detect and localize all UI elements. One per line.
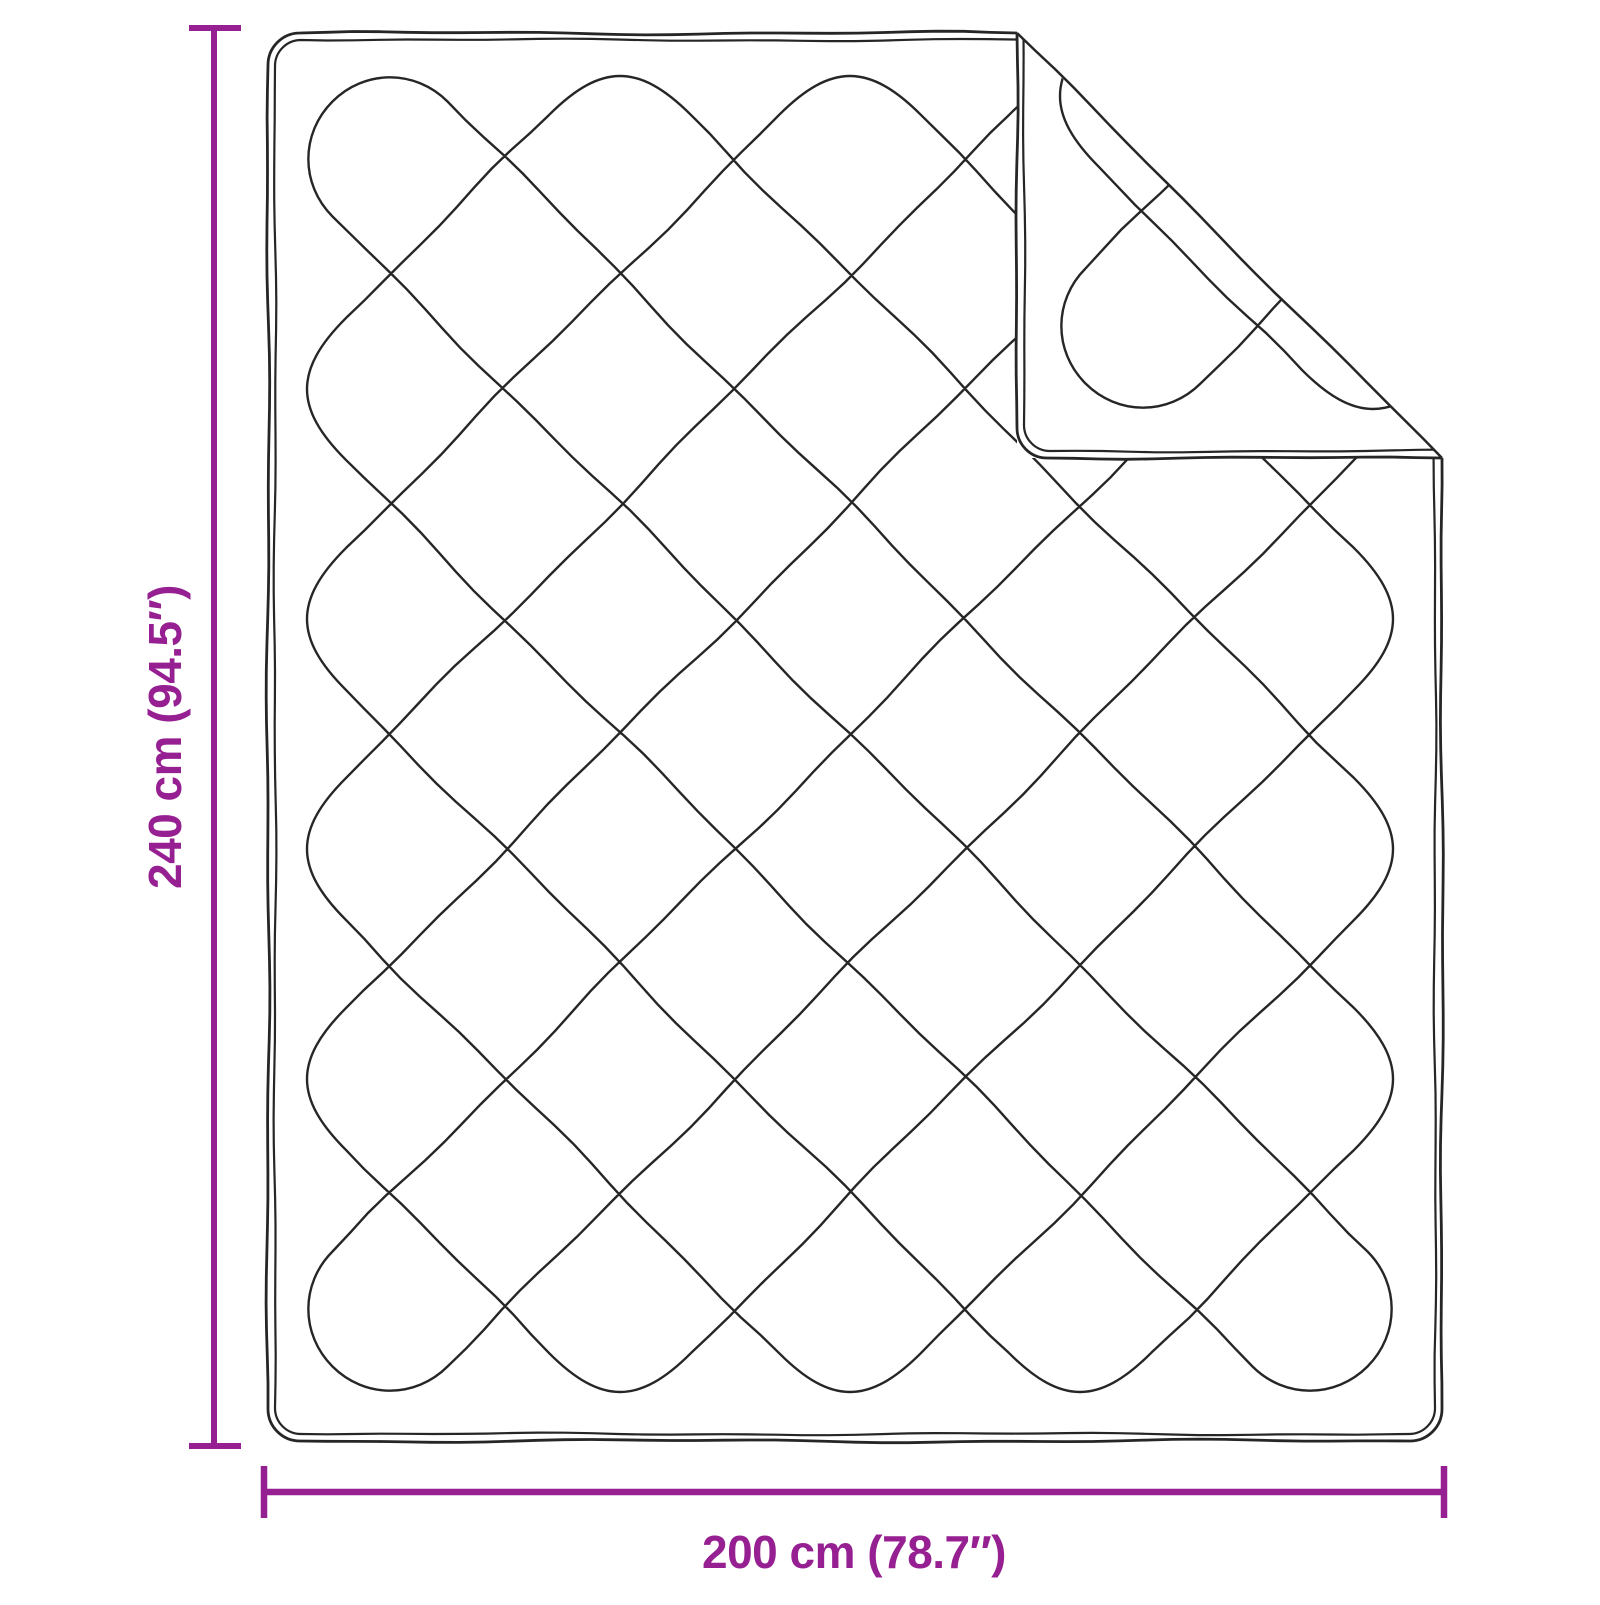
svg-text:240 cm (94.5″): 240 cm (94.5″) <box>139 585 191 889</box>
svg-text:200 cm (78.7″): 200 cm (78.7″) <box>702 1526 1006 1578</box>
